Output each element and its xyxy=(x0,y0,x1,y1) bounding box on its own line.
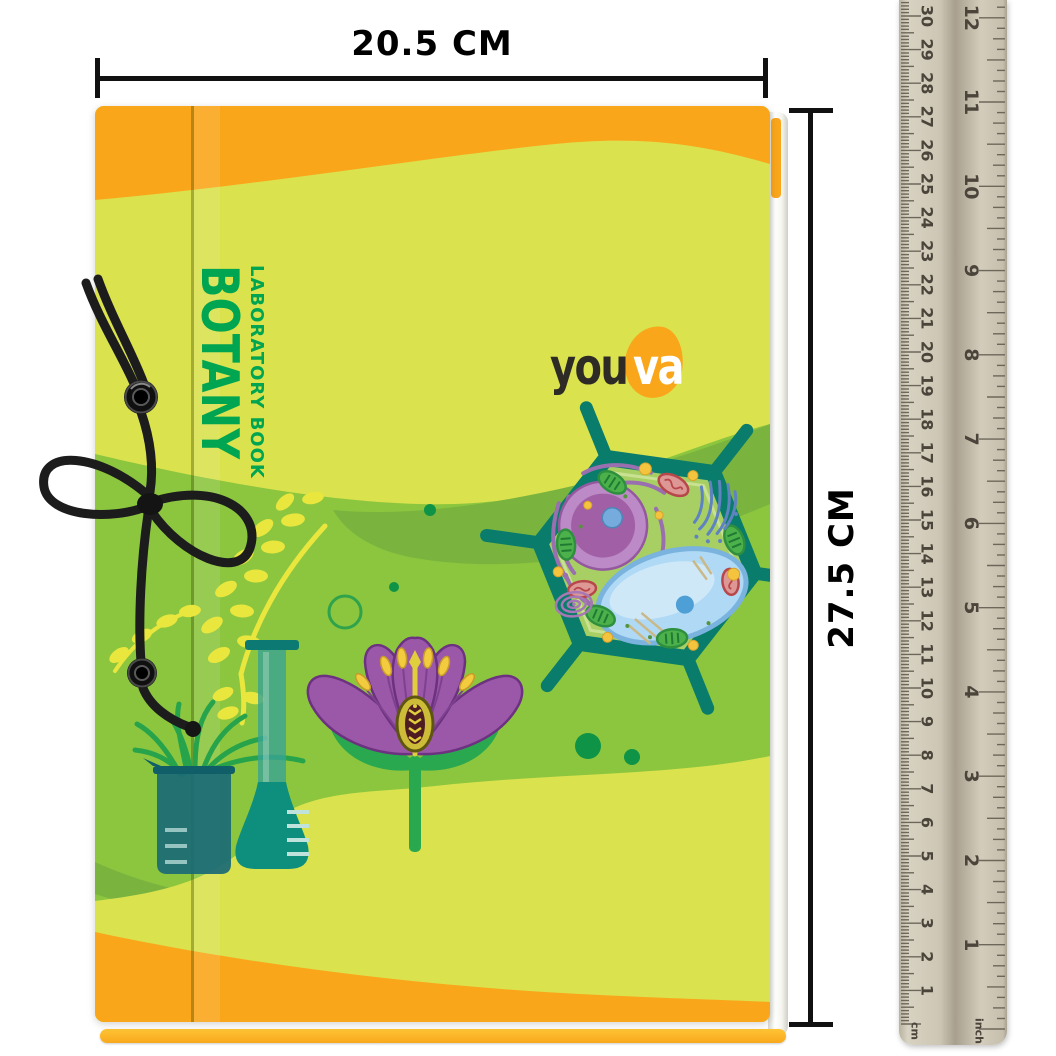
ruler-cm-number: 5 xyxy=(918,850,937,861)
height-dimension-label: 27.5 CM xyxy=(822,475,862,661)
width-dimension-line xyxy=(97,76,768,81)
ruler-inch-number: 10 xyxy=(960,173,982,199)
ruler-inch-number: 9 xyxy=(960,264,982,277)
width-dimension-label: 20.5 CM xyxy=(317,24,547,64)
ruler-cm-number: 29 xyxy=(918,38,937,60)
cover-art xyxy=(95,106,770,1022)
product-image-stage: 20.5 CM 27.5 CM xyxy=(0,0,1056,1056)
ruler-cm-number: 22 xyxy=(918,274,937,296)
ruler-cm-number: 12 xyxy=(918,610,937,632)
ruler-inch-number: 12 xyxy=(960,5,982,31)
ruler-cm-number: 15 xyxy=(918,509,937,531)
ruler-inch-number: 8 xyxy=(960,348,982,361)
ruler-cm-number: 7 xyxy=(918,783,937,794)
ruler-cm-number: 6 xyxy=(918,817,937,828)
cover-title-block: LABORATORY BOOK BOTANY xyxy=(192,265,268,455)
ruler-cm-number: 18 xyxy=(918,408,937,430)
ruler-cm-number: 27 xyxy=(918,106,937,128)
ruler-cm-number: 30 xyxy=(918,5,937,27)
ruler-cm-number: 23 xyxy=(918,240,937,262)
ruler-cm-number: 8 xyxy=(918,750,937,761)
book-bottom-page-edge xyxy=(100,1029,786,1043)
ruler-cm-number: 24 xyxy=(918,206,937,228)
ruler-cm-number: 19 xyxy=(918,374,937,396)
ruler-cm-number: 4 xyxy=(918,884,937,895)
ruler-cm-number: 11 xyxy=(918,643,937,665)
book-front-cover: LABORATORY BOOK BOTANY you va xyxy=(95,106,770,1022)
book-back-cover-edge xyxy=(771,118,781,198)
ruler-inch-number: 3 xyxy=(960,770,982,783)
spine-highlight xyxy=(194,106,220,1022)
ruler-cm-number: 20 xyxy=(918,341,937,363)
cover-title: BOTANY xyxy=(194,265,244,421)
ruler-cm-number: 10 xyxy=(918,677,937,699)
book-page-edges xyxy=(768,112,788,1036)
height-dimension-bottom-tick xyxy=(789,1022,833,1027)
ruler-cm-number: 26 xyxy=(918,139,937,161)
ruler-inch-number: 11 xyxy=(960,89,982,115)
ruler-inch-unit-label: inch xyxy=(973,1018,986,1044)
ruler-inch-number: 1 xyxy=(960,938,982,951)
ruler-inch-number: 5 xyxy=(960,601,982,614)
ruler-inch-number: 7 xyxy=(960,432,982,445)
ruler-inch-number: 4 xyxy=(960,685,982,698)
ruler-cm-number: 28 xyxy=(918,72,937,94)
ruler-cm-number: 2 xyxy=(918,951,937,962)
ruler-inch-number: 2 xyxy=(960,854,982,867)
ruler: 1234567891011121314151617181920212223242… xyxy=(899,0,1007,1045)
height-dimension-top-tick xyxy=(789,108,833,113)
ruler-cm-number: 21 xyxy=(918,307,937,329)
height-dimension-line xyxy=(808,110,813,1025)
spine-crease xyxy=(191,106,194,1022)
ruler-cm-unit-label: cm xyxy=(909,1022,922,1040)
ruler-cm-number: 9 xyxy=(918,716,937,727)
ruler-cm-number: 25 xyxy=(918,173,937,195)
ruler-cm-number: 13 xyxy=(918,576,937,598)
ruler-cm-number: 16 xyxy=(918,475,937,497)
brand-logo-text-dark: you xyxy=(550,338,627,396)
width-dimension-left-tick xyxy=(95,58,100,98)
ruler-cm-number: 1 xyxy=(918,985,937,996)
ruler-inch-number: 6 xyxy=(960,517,982,530)
ruler-scales: 1234567891011121314151617181920212223242… xyxy=(899,0,1007,1045)
width-dimension-right-tick xyxy=(763,58,768,98)
brand-logo-text-light: va xyxy=(633,338,683,396)
ruler-cm-number: 14 xyxy=(918,542,937,564)
ruler-cm-number: 17 xyxy=(918,442,937,464)
ruler-cm-number: 3 xyxy=(918,918,937,929)
